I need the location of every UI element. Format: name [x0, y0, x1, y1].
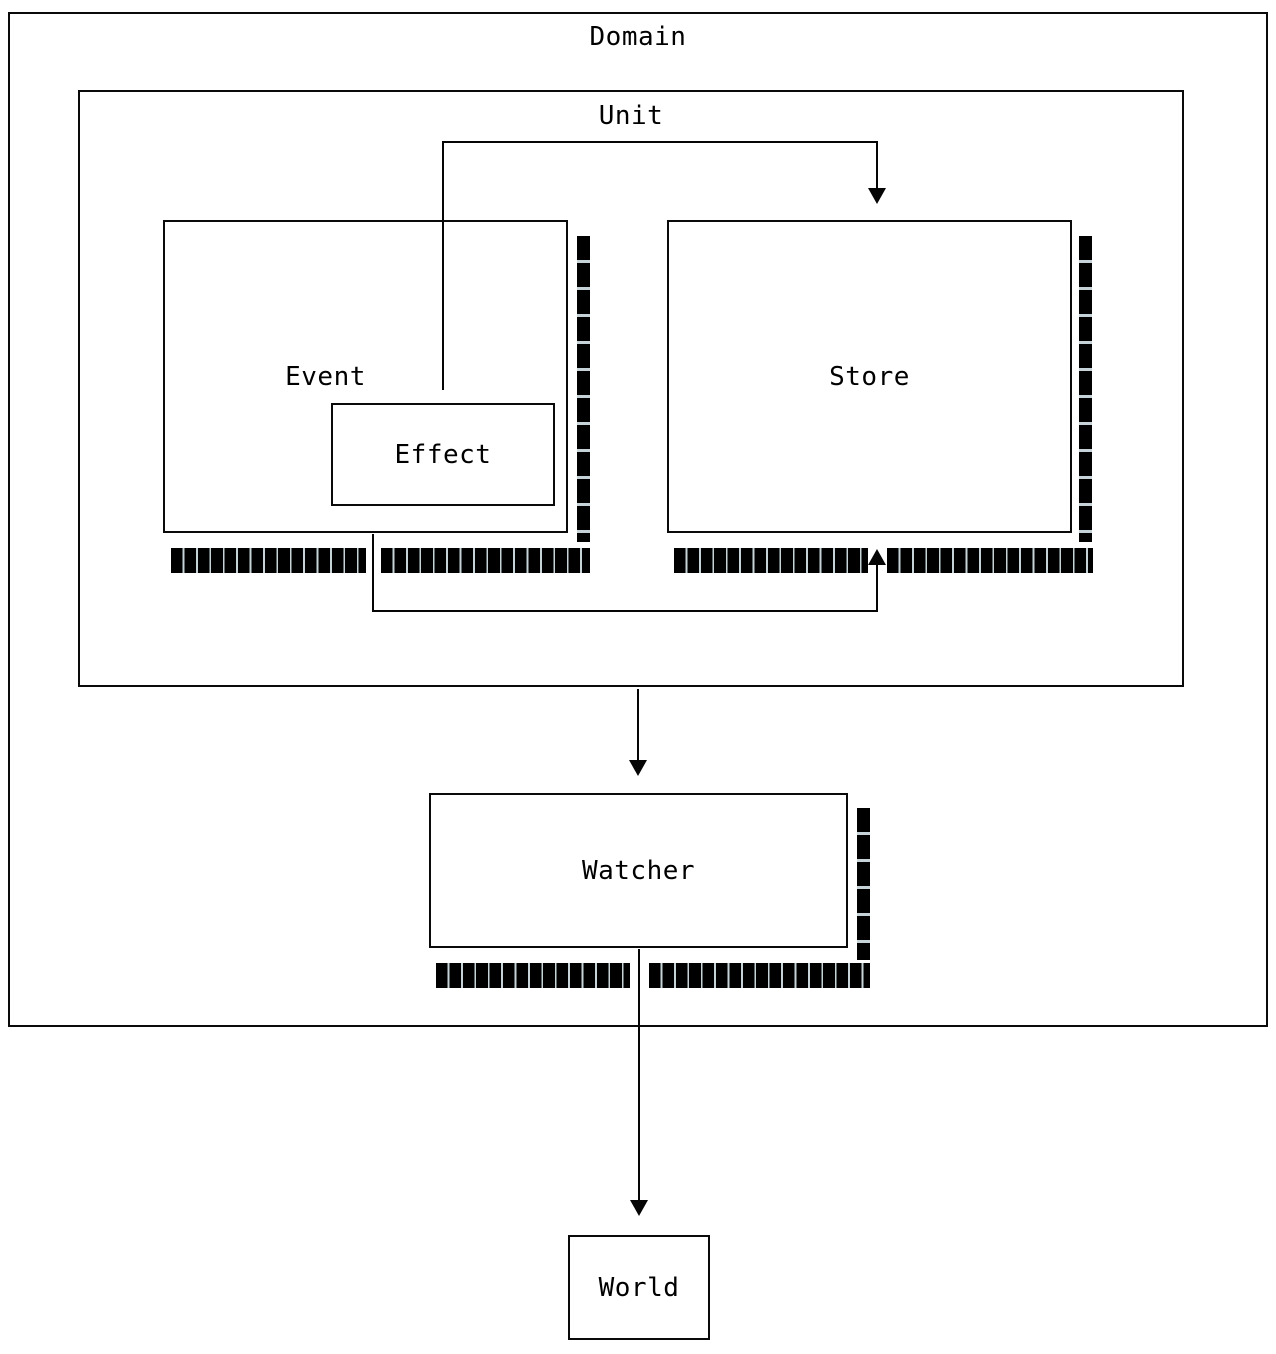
arrow-event-to-store-bottom-riser: [876, 564, 878, 612]
watcher-shadow-bottom-left: [436, 963, 630, 988]
diagram-canvas: Domain Unit Event Store Effect Watcher W…: [0, 0, 1276, 1354]
store-label: Store: [829, 362, 910, 392]
arrow-event-to-store-top-span: [442, 141, 878, 143]
arrowhead-down-icon: [630, 1200, 648, 1216]
store-shadow-bottom-left: [674, 548, 868, 573]
event-label: Event: [285, 362, 366, 392]
effect-label: Effect: [395, 440, 492, 470]
watcher-shadow-bottom-right: [649, 963, 870, 988]
watcher-shadow-right: [857, 808, 870, 960]
watcher-label: Watcher: [582, 856, 695, 886]
event-shadow-bottom-left: [171, 548, 366, 573]
unit-label: Unit: [599, 92, 664, 131]
watcher-box: Watcher: [429, 793, 848, 948]
world-label: World: [599, 1273, 680, 1303]
arrow-event-to-store-top-riser: [442, 142, 444, 390]
arrow-event-to-store-bottom-span: [372, 610, 878, 612]
arrowhead-down-icon: [629, 760, 647, 776]
arrow-watcher-to-world-line: [638, 949, 640, 1200]
effect-box: Effect: [331, 403, 555, 506]
store-shadow-right: [1079, 236, 1092, 542]
event-shadow-bottom-right: [381, 548, 590, 573]
arrow-unit-to-watcher-line: [637, 689, 639, 760]
event-shadow-right: [577, 236, 590, 542]
world-box: World: [568, 1235, 710, 1340]
domain-label: Domain: [590, 14, 687, 52]
store-box: Store: [667, 220, 1072, 533]
arrowhead-up-icon: [868, 549, 886, 565]
arrowhead-down-icon: [868, 188, 886, 204]
store-shadow-bottom-right: [887, 548, 1093, 573]
arrow-event-to-store-bottom-drop: [372, 534, 374, 612]
arrow-event-to-store-top-drop: [876, 141, 878, 188]
